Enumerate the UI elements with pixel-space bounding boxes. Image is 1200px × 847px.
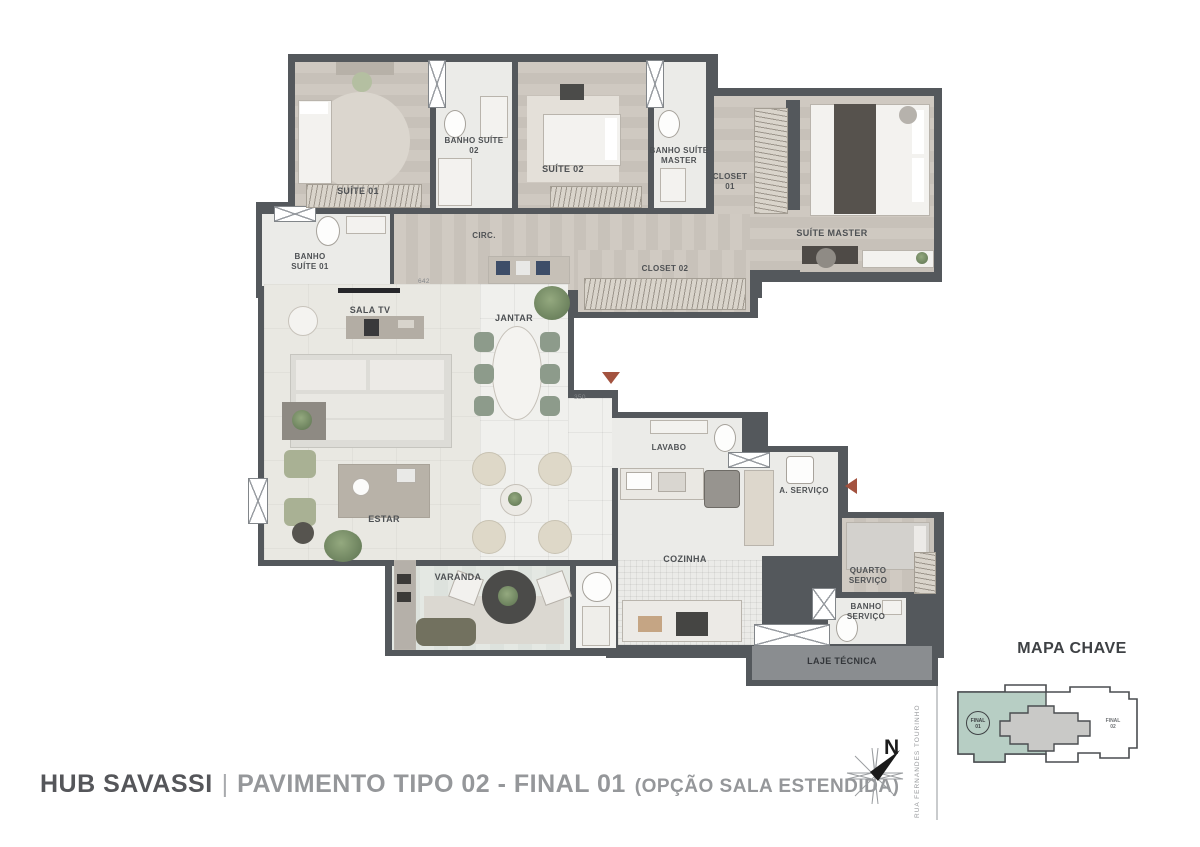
entry-arrow-icon xyxy=(602,372,620,384)
grill-icon xyxy=(397,592,411,602)
key-map-core xyxy=(1000,706,1090,751)
toilet-icon xyxy=(444,110,466,138)
room-label-circ: CIRC. xyxy=(462,231,506,241)
room-label-sala-tv: SALA TV xyxy=(340,305,400,316)
floor-hall-entrada xyxy=(568,398,612,560)
lavabo-counter xyxy=(650,420,708,434)
bed-throw xyxy=(834,104,876,214)
side-table xyxy=(288,306,318,336)
compass-north-label: N xyxy=(884,736,899,760)
pillow xyxy=(300,102,328,114)
room-label-banho-suite-02: BANHO SUÍTE 02 xyxy=(444,136,504,156)
sideboard-box xyxy=(496,261,510,275)
window-box-icon xyxy=(274,206,316,222)
room-label-closet-01: CLOSET 01 xyxy=(708,172,752,192)
grill-icon xyxy=(397,574,411,584)
dining-chair xyxy=(474,364,494,384)
decor xyxy=(398,320,414,328)
kitchen-sink xyxy=(626,472,652,490)
pouf xyxy=(284,450,316,478)
dining-chair xyxy=(540,332,560,352)
bench xyxy=(582,606,610,646)
toilet-icon xyxy=(658,110,680,138)
chair xyxy=(352,72,372,92)
room-label-quarto-servico: QUARTO SERVIÇO xyxy=(840,566,896,586)
dimension-label: 642 xyxy=(418,278,430,285)
pillow xyxy=(912,158,924,202)
tray xyxy=(352,478,370,496)
sideboard-box xyxy=(536,261,550,275)
room-label-banho-suite-01: BANHO SUÍTE 01 xyxy=(282,252,338,272)
dining-chair xyxy=(540,364,560,384)
dining-table xyxy=(492,326,542,420)
sink-vanity xyxy=(480,96,508,138)
key-map-final01-line2: 01 xyxy=(975,724,981,730)
dining-chair xyxy=(474,396,494,416)
dining-chair xyxy=(474,332,494,352)
dimension-label: 350 xyxy=(574,394,586,401)
basin-icon xyxy=(582,572,612,602)
floor-plan-page: 642 350 SUÍTE 01 BANHO SUÍTE 02 SUÍTE 02… xyxy=(0,0,1200,847)
shaft-box-icon xyxy=(754,624,830,646)
room-label-laje-tecnica: LAJE TÉCNICA xyxy=(786,656,898,667)
rug-estar xyxy=(338,464,430,518)
key-map-title: MAPA CHAVE xyxy=(992,640,1152,658)
fridge xyxy=(704,470,740,508)
pouf-dark xyxy=(292,522,314,544)
plan-title: HUB SAVASSI | PAVIMENTO TIPO 02 - FINAL … xyxy=(40,770,899,799)
pouf xyxy=(899,106,917,124)
stool xyxy=(816,248,836,268)
plant-icon xyxy=(916,252,928,264)
oven-stove xyxy=(676,612,708,636)
shaft-box-icon xyxy=(428,60,446,108)
wardrobe-closet-02 xyxy=(584,278,746,310)
room-label-suite-master: SUÍTE MASTER xyxy=(782,228,882,239)
plant-icon xyxy=(324,530,362,562)
room-label-lavabo: LAVABO xyxy=(646,443,692,453)
laptop-icon xyxy=(396,468,416,483)
room-label-banho-servico: BANHO SERVIÇO xyxy=(838,602,894,622)
key-map-final02-line2: 02 xyxy=(1110,724,1116,730)
shaft-box-icon xyxy=(646,60,664,108)
room-label-suite-01: SUÍTE 01 xyxy=(318,186,398,197)
plant-icon xyxy=(498,586,518,606)
tv-icon xyxy=(364,319,379,336)
washer xyxy=(786,456,814,484)
key-map: FINAL 01 FINAL 02 xyxy=(950,676,1145,776)
pillow xyxy=(605,118,617,160)
plant-icon xyxy=(508,492,522,506)
shaft-box-icon xyxy=(812,588,836,620)
armchair xyxy=(472,520,506,554)
title-separator: | xyxy=(222,770,229,799)
wardrobe-suite-02 xyxy=(550,186,642,208)
plant-icon xyxy=(292,410,312,430)
floor-jantar xyxy=(480,284,568,560)
plan-name: PAVIMENTO TIPO 02 - FINAL 01 xyxy=(237,770,626,799)
cooktop xyxy=(658,472,686,492)
armchair xyxy=(538,452,572,486)
board xyxy=(638,616,662,632)
sofa-cushion xyxy=(370,360,444,390)
toilet-icon xyxy=(714,424,736,452)
room-label-estar: ESTAR xyxy=(356,514,412,525)
room-label-jantar: JANTAR xyxy=(486,313,542,324)
sink-vanity xyxy=(346,216,386,234)
room-label-suite-02: SUÍTE 02 xyxy=(528,164,598,175)
room-label-a-servico: A. SERVIÇO xyxy=(770,486,838,496)
desk-chair xyxy=(560,84,584,100)
project-name: HUB SAVASSI xyxy=(40,770,213,799)
sofa-cushion xyxy=(296,360,366,390)
toilet-icon xyxy=(316,216,340,246)
room-label-cozinha: COZINHA xyxy=(654,554,716,565)
service-entry-arrow-icon xyxy=(845,478,857,494)
room-label-closet-02: CLOSET 02 xyxy=(630,264,700,274)
lounge-chair xyxy=(416,618,476,646)
tv-icon xyxy=(338,288,400,293)
street-name-label: RUA FERNANDES TOURINHO xyxy=(914,690,921,818)
pantry-cabinet xyxy=(744,470,774,546)
sink-vanity xyxy=(660,168,686,202)
room-label-varanda: VARANDA xyxy=(428,572,488,583)
wardrobe-closet-01 xyxy=(754,108,788,214)
room-label-banho-suite-master: BANHO SUÍTE MASTER xyxy=(648,146,710,166)
armchair xyxy=(538,520,572,554)
wardrobe-servico xyxy=(914,552,936,594)
shower-box xyxy=(438,158,472,206)
dining-chair xyxy=(540,396,560,416)
street-divider-line xyxy=(936,686,938,820)
sideboard-box xyxy=(516,261,530,275)
wall-closet-divider xyxy=(786,100,800,210)
window-box-icon xyxy=(728,452,770,468)
compass-rose-icon xyxy=(840,728,912,812)
armchair xyxy=(472,452,506,486)
shaft-box-icon xyxy=(248,478,268,524)
